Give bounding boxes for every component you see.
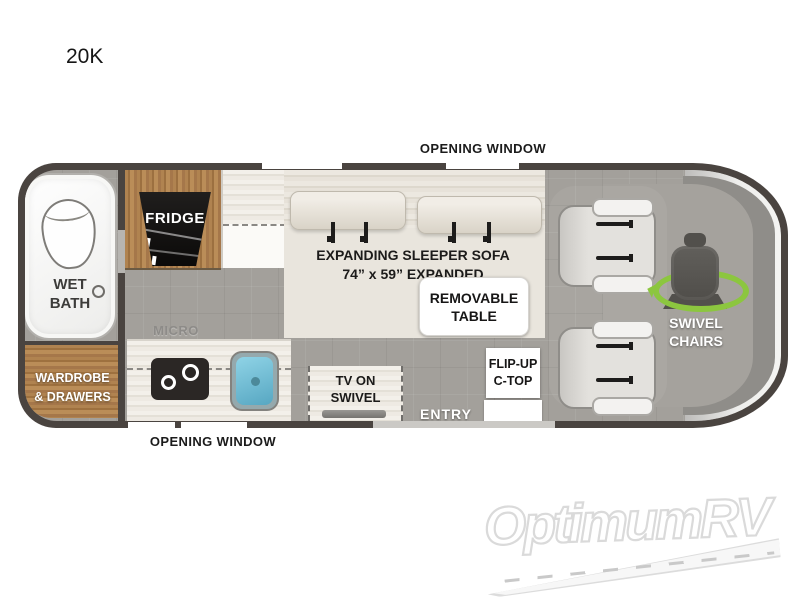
- entry-door-opening: [373, 421, 555, 428]
- fridge-handle-icon: [145, 238, 151, 248]
- floorplan-page: 20K OPENING WINDOW WET BATH WARDR: [0, 0, 800, 600]
- fridge-cabinet: FRIDGE: [125, 170, 221, 270]
- van-floor: WET BATH WARDROBE & DRAWERS FRIDGE: [25, 170, 781, 421]
- fridge-label: FRIDGE: [136, 210, 214, 227]
- seatbelt-icon: [331, 222, 335, 243]
- opening-window-label-top: OPENING WINDOW: [373, 141, 593, 156]
- tv-area: TV ON SWIVEL: [308, 366, 403, 421]
- fridge-handle-icon: [151, 256, 156, 265]
- armrest: [592, 320, 654, 339]
- swivel-chair-passenger: [558, 327, 656, 409]
- cooktop-icon: [151, 358, 209, 400]
- wardrobe-label: WARDROBE & DRAWERS: [25, 369, 120, 407]
- seatbelt-icon: [596, 344, 631, 348]
- side-counter-lower: [223, 224, 286, 268]
- wardrobe-drawers: WARDROBE & DRAWERS: [25, 341, 123, 418]
- sofa-cushion: [290, 191, 406, 230]
- sofa-cushion: [417, 196, 542, 234]
- van-body: WET BATH WARDROBE & DRAWERS FRIDGE: [18, 163, 788, 428]
- wet-bath: WET BATH: [25, 173, 117, 340]
- opening-window-strip: [262, 163, 342, 169]
- armrest: [592, 198, 654, 217]
- tv-label: TV ON SWIVEL: [310, 372, 401, 406]
- entry-label: ENTRY: [408, 406, 484, 421]
- side-counter: [221, 170, 286, 268]
- flip-up-counter: [484, 400, 542, 421]
- swivel-chair-icon-headrest: [684, 233, 706, 247]
- kitchen-counter: [127, 339, 291, 421]
- swivel-chairs-label: SWIVEL CHAIRS: [653, 314, 739, 350]
- seatbelt-icon: [452, 222, 456, 243]
- toilet-icon: [39, 197, 99, 271]
- watermark: OptimumRV: [478, 485, 796, 595]
- seatbelt-icon: [487, 222, 491, 243]
- sink-drain-icon: [251, 377, 260, 386]
- drain-icon: [92, 285, 105, 298]
- opening-window-strip: [128, 422, 175, 428]
- opening-window-label-bottom: OPENING WINDOW: [103, 434, 323, 449]
- fridge-icon: FRIDGE: [136, 192, 214, 266]
- seatbelt-icon: [596, 256, 631, 260]
- seatbelt-icon: [596, 222, 631, 226]
- swivel-chair-driver: [558, 205, 656, 287]
- seatbelt-icon: [596, 378, 631, 382]
- armrest: [592, 275, 654, 294]
- opening-window-strip: [446, 163, 519, 169]
- bath-wall: [118, 170, 125, 421]
- burner-icon: [161, 375, 176, 390]
- removable-table: REMOVABLE TABLE: [419, 277, 529, 336]
- model-label: 20K: [66, 45, 103, 69]
- opening-window-strip: [181, 422, 247, 428]
- sink-icon: [230, 351, 279, 411]
- tv-icon: [322, 410, 386, 418]
- swivel-chair-icon: [671, 246, 719, 300]
- bath-door-opening: [118, 230, 125, 273]
- burner-icon: [182, 364, 199, 381]
- flip-up-ctop-label: FLIP-UP C-TOP: [486, 348, 540, 398]
- micro-label: MICRO: [134, 323, 218, 338]
- seatbelt-icon: [364, 222, 368, 243]
- fridge-door-line: [142, 228, 207, 241]
- armrest: [592, 397, 654, 416]
